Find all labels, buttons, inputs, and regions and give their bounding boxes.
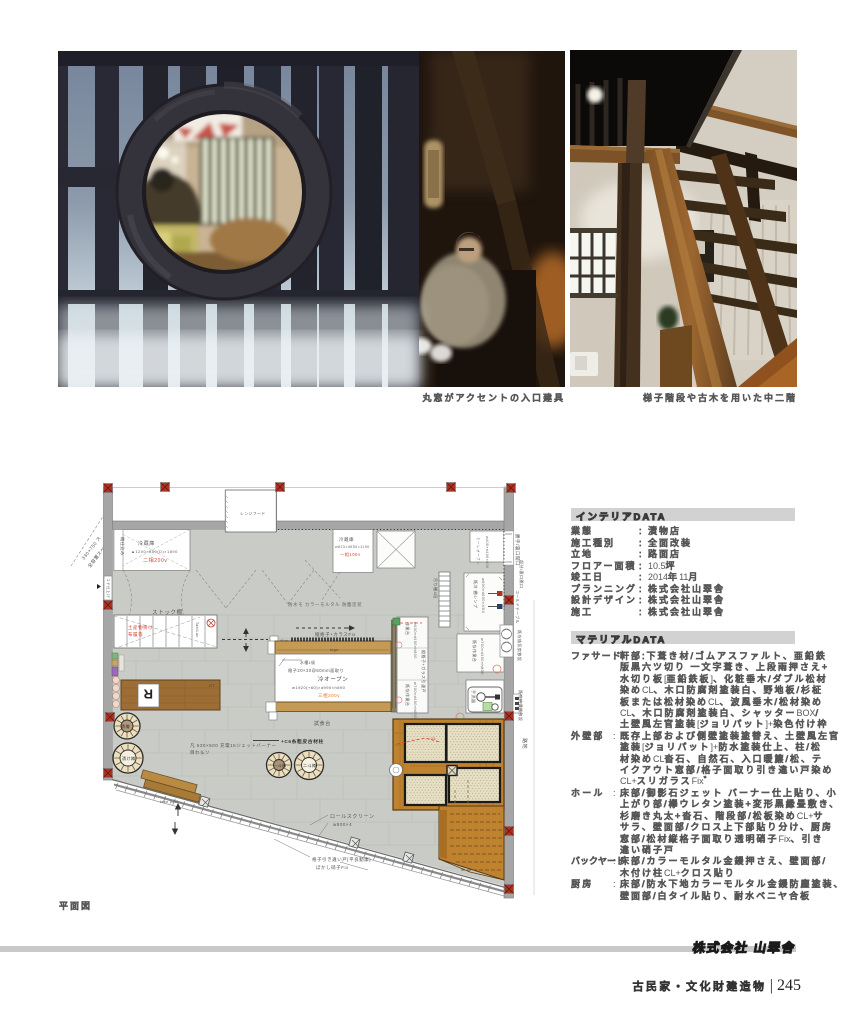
svg-text:部分/裏口開口: 部分/裏口開口 [519, 560, 525, 588]
svg-text:縦格子+ガラス引違戸: 縦格子+ガラス引違戸 [421, 650, 427, 693]
svg-text:Tab/Lac: Tab/Lac [195, 622, 199, 638]
svg-text:▲1200×850(D)×1890: ▲1200×850(D)×1890 [131, 549, 178, 554]
svg-text:試食台: 試食台 [314, 720, 331, 727]
svg-text:×33: ×33 [428, 737, 436, 741]
svg-text:冷オーブン: 冷オーブン [318, 675, 348, 683]
svg-text:土産物掛け: 土産物掛け [128, 624, 153, 631]
svg-text:w800×d600×XBX: w800×d600×XBX [481, 578, 485, 613]
svg-text:二斗樽: 二斗樽 [303, 762, 316, 768]
svg-text:凡 530×500 充電15ジェットバーナー: 凡 530×500 充電15ジェットバーナー [190, 742, 277, 749]
svg-text:ミーレオーブン: ミーレオーブン [476, 537, 481, 565]
svg-text:既存作業台: 既存作業台 [472, 640, 478, 662]
svg-text:w1920(+60)×d990×h890: w1920(+60)×d990×h890 [292, 685, 346, 690]
svg-text:+C6糸粗皮古材柱: +C6糸粗皮古材柱 [281, 738, 324, 745]
svg-text:目わ仏ソ: 目わ仏ソ [190, 749, 210, 756]
svg-text:縦格子+カラスFix: 縦格子+カラスFix [315, 631, 356, 638]
svg-text:糀仕込み: 糀仕込み [119, 537, 126, 556]
svg-text:既冷 棚シンプ: 既冷 棚シンプ [473, 580, 479, 608]
svg-text:既存作業台: 既存作業台 [405, 684, 411, 706]
svg-text:ロールスクリーン: ロールスクリーン [330, 814, 375, 820]
svg-text:w823×d550×1190: w823×d550×1190 [335, 545, 370, 549]
svg-text:w700×d450×h800: w700×d450×h800 [413, 682, 417, 719]
svg-text:手洗器: 手洗器 [471, 690, 477, 703]
svg-text:レンジフード: レンジフード [240, 511, 266, 516]
svg-text:一相100v: 一相100v [340, 551, 361, 558]
svg-text:布履等: 布履等 [128, 631, 143, 638]
svg-text:水槽1級: 水槽1級 [300, 660, 315, 665]
svg-text:既存換気扇移設: 既存換気扇移設 [517, 630, 523, 661]
svg-text:sign: sign [330, 648, 339, 652]
svg-text:w700×d450×h800: w700×d450×h800 [480, 638, 484, 675]
svg-text:R: R [143, 687, 153, 702]
svg-text:格子20×30@60mm面取り: 格子20×30@60mm面取り [288, 667, 344, 674]
svg-text:take pool: take pool [160, 800, 178, 804]
svg-text:路地: 路地 [521, 738, 528, 749]
svg-text:冷蔵庫: 冷蔵庫 [138, 540, 155, 547]
svg-text:作業台: 作業台 [405, 622, 411, 635]
svg-text:防水モ カラーモルタル 防塵塗装: 防水モ カラーモルタル 防塵塗装 [288, 601, 362, 608]
svg-text:既存給湯器移設: 既存給湯器移設 [518, 690, 524, 721]
svg-text:w400×d400×600: w400×d400×600 [485, 536, 489, 568]
svg-text:一斗樽: 一斗樽 [273, 762, 286, 768]
svg-text:w800×4: w800×4 [333, 822, 352, 827]
svg-text:コールドテーブル: コールドテーブル [515, 590, 520, 624]
svg-text:w630×d450×h800: w630×d450×h800 [413, 622, 417, 659]
svg-text:二相200v: 二相200v [143, 557, 167, 564]
svg-text:CT: CT [209, 683, 215, 688]
svg-text:格子引き違い戸[平良動康]: 格子引き違い戸[平良動康] [312, 856, 371, 863]
svg-text:ぼかし硝子Fix: ぼかし硝子Fix [316, 864, 349, 871]
svg-text:漬け樽: 漬け樽 [122, 755, 135, 761]
svg-text:冷蔵庫: 冷蔵庫 [339, 536, 354, 543]
svg-text:三相200v: 三相200v [318, 692, 340, 699]
svg-text:漬樽: 漬樽 [121, 723, 130, 729]
svg-text:吊り棚4段: 吊り棚4段 [433, 578, 439, 599]
svg-text:コテ仕上げ: コテ仕上げ [106, 578, 111, 598]
